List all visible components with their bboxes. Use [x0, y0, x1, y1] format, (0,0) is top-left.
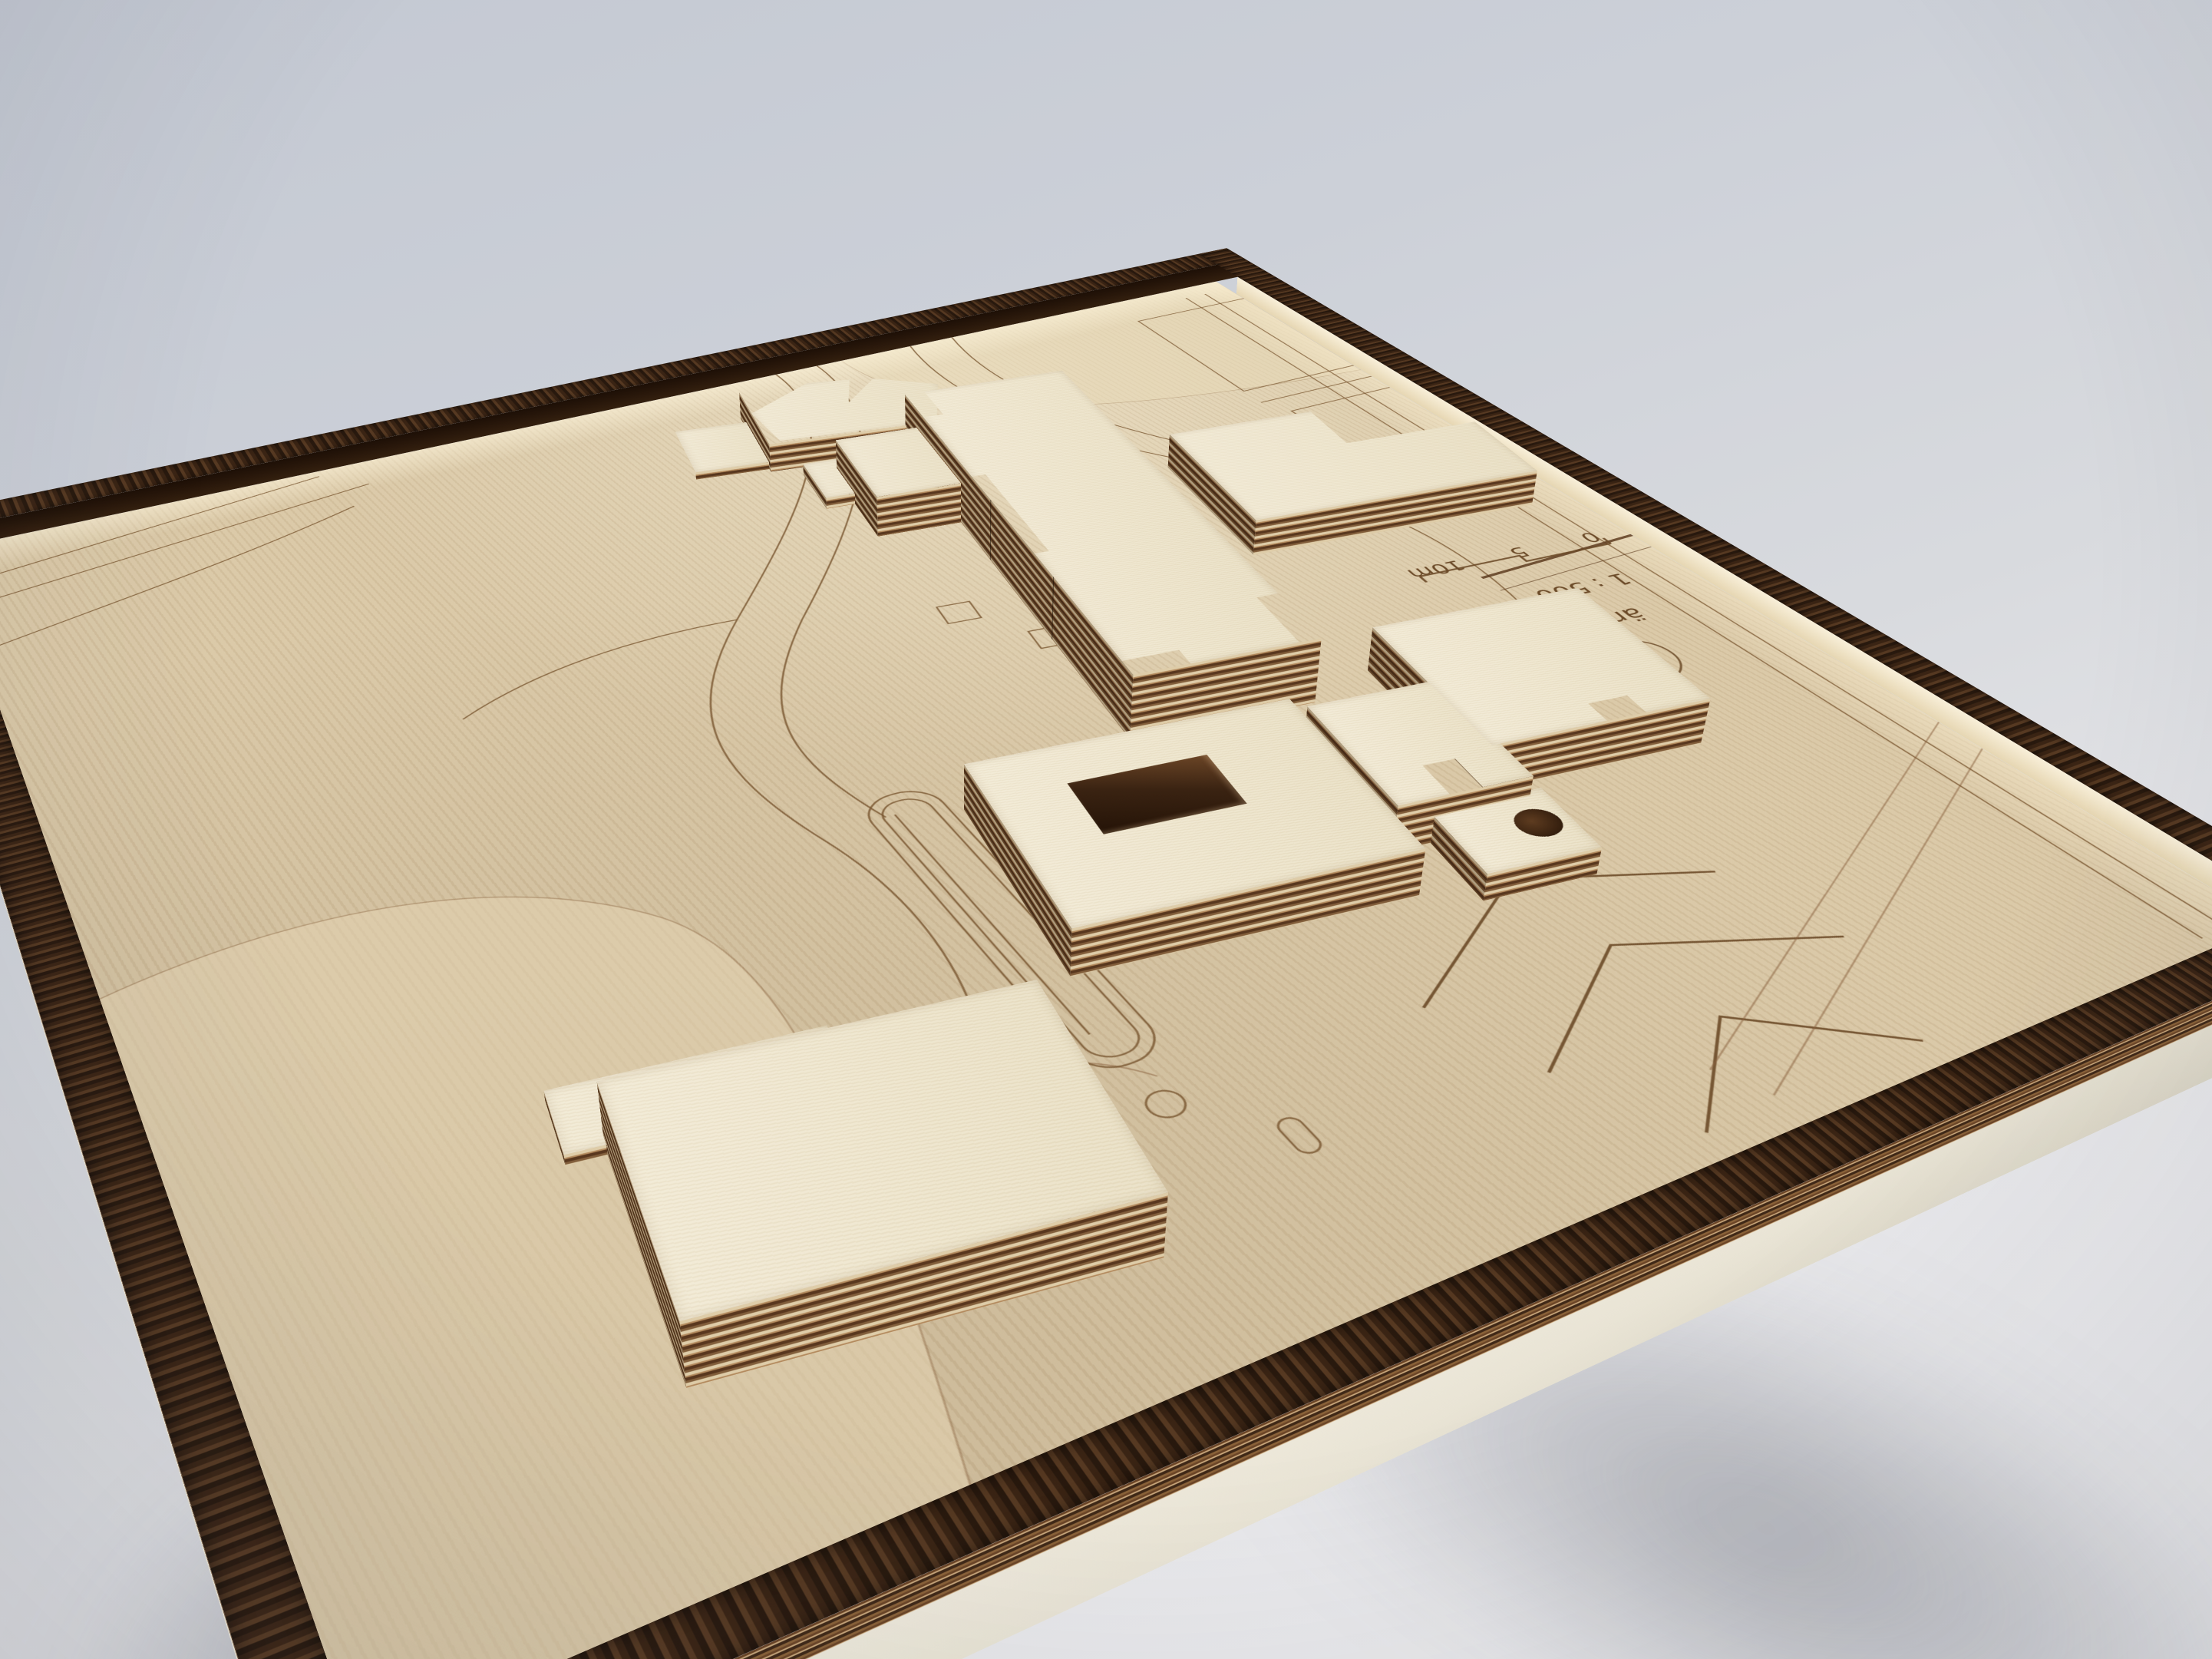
photo-backdrop: 0 5 10m 1 : 500 ände [0, 0, 2212, 1659]
courtyard-void [1067, 755, 1246, 834]
round-notch [1505, 805, 1573, 841]
facade-seam [1052, 577, 1054, 640]
scale-ten-label: 10m [1401, 557, 1470, 582]
facade-seam [990, 500, 991, 561]
